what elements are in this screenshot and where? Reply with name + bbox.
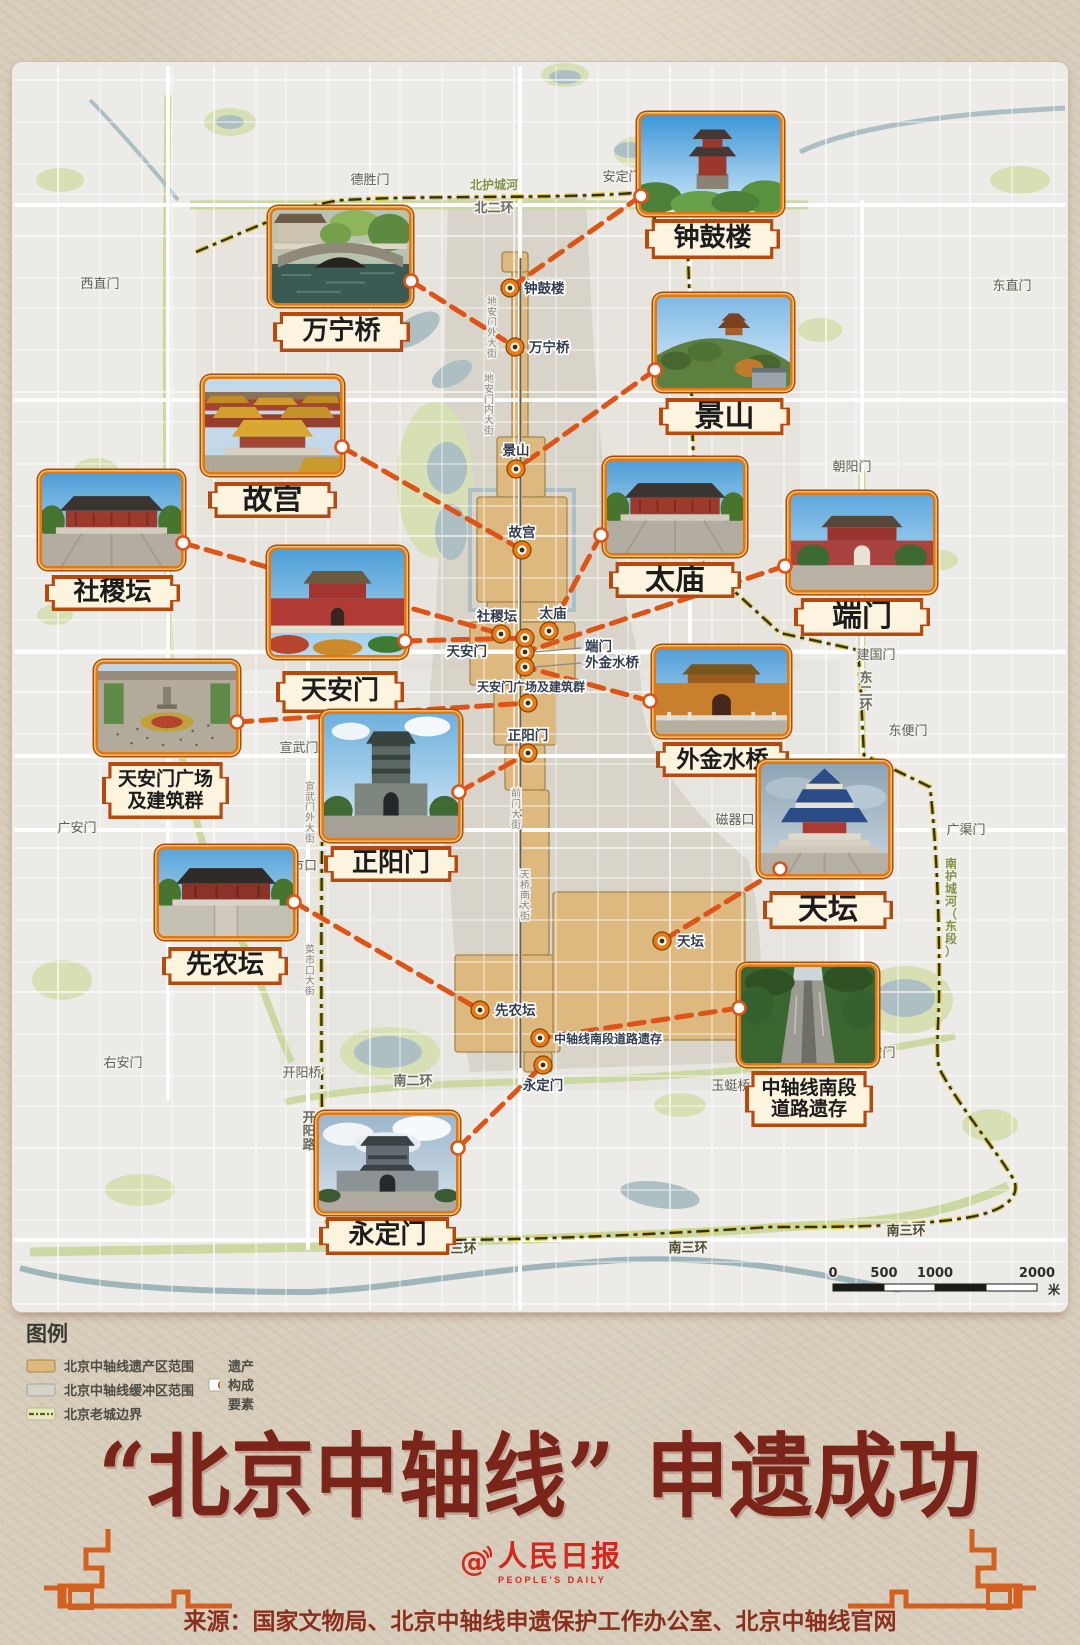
legend-label-buffer: 北京中轴线缓冲区范围 (64, 1380, 194, 1399)
svg-text:中轴线南段道路遗存: 中轴线南段道路遗存 (554, 1031, 662, 1046)
legend-item-buffer: 北京中轴线缓冲区范围 (26, 1380, 194, 1399)
site-photo-duanmen (787, 491, 937, 594)
site-photo-nanduan (737, 963, 879, 1067)
at-icon: @ (458, 1543, 492, 1583)
svg-text:正阳门: 正阳门 (508, 727, 549, 744)
svg-text:磁器口: 磁器口 (715, 813, 754, 828)
svg-text:先农坛: 先农坛 (495, 1002, 536, 1019)
site-photo-waijinshuiqiao (652, 645, 791, 738)
svg-text:东直门: 东直门 (992, 279, 1031, 294)
site-label-taimiao: 太庙 (609, 562, 741, 598)
marker-wanningqiao (506, 338, 524, 356)
svg-text:1000: 1000 (917, 1266, 953, 1281)
svg-text:端门: 端门 (585, 638, 612, 655)
legend-swatch-element (208, 1378, 220, 1392)
logo-en: PEOPLE'S DAILY (498, 1575, 606, 1585)
svg-text:景山: 景山 (503, 443, 530, 459)
svg-text:南护城河（东段）: 南护城河（东段） (944, 856, 958, 958)
legend-heading: 图例 (26, 1318, 194, 1348)
poster-root: 德胜门安定门北护城河北二环西直门东直门朝阳门建国门东二环东便门广渠门南护城河（东… (0, 0, 1080, 1645)
site-label-jingshan: 景山 (659, 398, 790, 435)
legend-swatch-heritage (26, 1359, 56, 1373)
svg-text:地安门内大街: 地安门内大街 (484, 372, 494, 437)
svg-text:开阳桥: 开阳桥 (282, 1066, 321, 1081)
site-photo-wanningqiao (268, 206, 413, 307)
svg-text:天安门广场及建筑群: 天安门广场及建筑群 (477, 679, 585, 694)
site-photo-jingshan (653, 293, 794, 392)
site-label-zhengyangmen: 正阳门 (324, 846, 458, 882)
svg-text:南三环: 南三环 (668, 1240, 707, 1256)
site-label-xiannongtan: 先农坛 (162, 947, 288, 985)
photo-tiananmen-image (271, 550, 404, 655)
marker-nanduan (531, 1029, 549, 1047)
svg-text:宣武门外大街: 宣武门外大街 (305, 780, 315, 845)
svg-text:前门大街: 前门大街 (511, 787, 521, 831)
photo-guangchang-image (98, 664, 236, 752)
photo-shejitan-image (42, 474, 181, 566)
photo-taimiao-image (607, 461, 743, 553)
site-photo-yongdingmen (315, 1111, 460, 1215)
photo-zhengyangmen-image (324, 714, 458, 838)
svg-text:东便门: 东便门 (888, 724, 927, 739)
site-photo-xiannongtan (155, 845, 297, 940)
svg-text:社稷坛: 社稷坛 (476, 608, 518, 625)
photo-tiantan-image (761, 764, 888, 874)
svg-text:北二环: 北二环 (474, 201, 513, 216)
marker-shejitan (492, 625, 510, 643)
photo-nanduan-image (741, 967, 875, 1063)
site-photo-tiananmen (267, 546, 408, 659)
svg-text:德胜门: 德胜门 (350, 173, 389, 188)
svg-text:天安门: 天安门 (447, 643, 488, 660)
legend-item-heritage: 北京中轴线遗产区范围 (26, 1356, 194, 1375)
svg-text:太庙: 太庙 (540, 605, 568, 622)
marker-xiannongtan (471, 1001, 489, 1019)
svg-text:右安门: 右安门 (103, 1056, 142, 1071)
site-label-wanningqiao: 万宁桥 (273, 312, 410, 352)
marker-yongdingmen (534, 1056, 552, 1074)
svg-text:万宁桥: 万宁桥 (528, 339, 570, 356)
marker-waijinshuiqiao (516, 658, 534, 676)
svg-text:东二环: 东二环 (859, 670, 872, 713)
svg-text:宣武门: 宣武门 (279, 740, 318, 756)
marker-zhonggulou (501, 279, 519, 297)
marker-zhengyangmen (519, 744, 537, 762)
site-photo-zhengyangmen (320, 710, 462, 842)
site-label-shejitan: 社稷坛 (45, 575, 180, 611)
site-photo-tiantan (757, 760, 892, 878)
legend-swatch-buffer (26, 1383, 56, 1397)
photo-jingshan-image (657, 297, 790, 388)
site-label-guangchang: 天安门广场及建筑群 (102, 762, 229, 819)
svg-text:外金水桥: 外金水桥 (585, 654, 639, 671)
site-label-yongdingmen: 永定门 (319, 1217, 456, 1255)
svg-text:天桥南大街: 天桥南大街 (520, 870, 530, 923)
peoples-daily-logo: @ 人民日报 PEOPLE'S DAILY (0, 1543, 1080, 1585)
photo-wanningqiao-image (272, 210, 409, 303)
svg-text:500: 500 (870, 1266, 897, 1281)
svg-text:朝阳门: 朝阳门 (832, 460, 871, 475)
svg-text:钟鼓楼: 钟鼓楼 (524, 280, 565, 297)
svg-text:玉蜓桥: 玉蜓桥 (711, 1079, 750, 1094)
site-photo-gugong (201, 375, 344, 476)
svg-text:地安门外大街: 地安门外大街 (487, 295, 497, 360)
marker-jingshan (507, 460, 525, 478)
marker-tiantan (653, 932, 671, 950)
svg-text:永定门: 永定门 (523, 1077, 564, 1094)
site-label-tiantan: 天坛 (763, 891, 893, 929)
marker-tiananmen (516, 629, 534, 647)
svg-text:故宫: 故宫 (509, 524, 536, 541)
site-photo-shejitan (38, 470, 185, 570)
svg-text:西直门: 西直门 (80, 277, 119, 292)
site-label-gugong: 故宫 (208, 482, 337, 518)
svg-text:广安门: 广安门 (57, 821, 96, 836)
site-label-duanmen: 端门 (794, 598, 930, 636)
site-label-nanduan: 中轴线南段道路遗存 (745, 1071, 873, 1127)
svg-text:0: 0 (828, 1266, 837, 1281)
svg-text:菜市口大街: 菜市口大街 (305, 944, 315, 998)
photo-duanmen-image (791, 495, 933, 590)
marker-guangchang (519, 694, 537, 712)
site-label-zhonggulou: 钟鼓楼 (645, 219, 780, 259)
svg-text:北护城河: 北护城河 (470, 177, 518, 192)
site-label-tiananmen: 天安门 (276, 671, 404, 713)
svg-text:米: 米 (1048, 1282, 1061, 1297)
site-photo-zhonggulou (637, 112, 784, 216)
logo-cn: 人民日报 (498, 1543, 622, 1572)
site-photo-taimiao (603, 457, 747, 557)
site-photo-guangchang (94, 660, 240, 756)
photo-zhonggulou-image (641, 116, 780, 212)
svg-text:安定门: 安定门 (602, 170, 641, 185)
photo-gugong-image (205, 379, 340, 472)
photo-yongdingmen-image (319, 1115, 456, 1211)
svg-text:建国门: 建国门 (856, 648, 895, 663)
svg-text:南二环: 南二环 (393, 1073, 432, 1089)
poster-title: “北京中轴线” 申遗成功 (0, 1403, 1080, 1535)
svg-text:广渠门: 广渠门 (946, 823, 985, 838)
source-credit: 来源：国家文物局、北京中轴线申遗保护工作办公室、北京中轴线官网 (0, 1602, 1080, 1636)
photo-waijinshuiqiao-image (656, 649, 787, 734)
marker-gugong (513, 541, 531, 559)
photo-xiannongtan-image (159, 849, 293, 936)
marker-taimiao (540, 622, 558, 640)
legend-label-heritage: 北京中轴线遗产区范围 (64, 1356, 194, 1375)
svg-text:2000: 2000 (1019, 1266, 1055, 1281)
svg-text:南三环: 南三环 (886, 1223, 925, 1239)
svg-text:天坛: 天坛 (677, 933, 705, 950)
